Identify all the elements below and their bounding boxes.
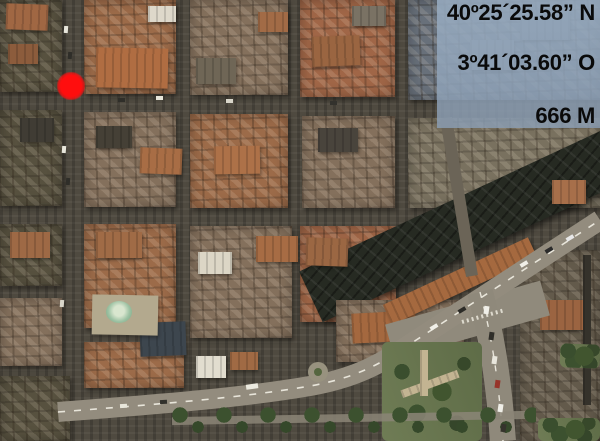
round-pool [106, 301, 132, 323]
vehicle [160, 400, 167, 404]
building-roof [256, 236, 298, 262]
vehicle [64, 26, 68, 33]
building-roof [148, 6, 176, 22]
building-roof [318, 128, 358, 152]
building-roof [198, 252, 232, 274]
traffic-island [308, 362, 328, 382]
building-roof [352, 6, 386, 26]
vehicle [488, 332, 494, 341]
crosswalk [462, 310, 505, 322]
building-roof [140, 147, 183, 174]
alley [583, 255, 591, 405]
building-roof [10, 232, 50, 258]
park [538, 418, 600, 441]
vehicle [226, 99, 233, 103]
latitude-label: 40º25´25.58” N [437, 0, 600, 26]
building-roof [96, 126, 132, 148]
vehicle [491, 356, 497, 365]
longitude-label: 3º41´03.60” O [437, 50, 600, 76]
building-roof [6, 3, 49, 30]
city-block [0, 298, 62, 366]
tree-row [168, 403, 536, 441]
park-path [420, 350, 428, 396]
vehicle [118, 98, 125, 102]
vehicle [330, 101, 337, 105]
building-roof [96, 47, 169, 88]
elevation-label: 666 M [437, 103, 600, 129]
building-roof [20, 118, 54, 142]
coordinates-overlay: 40º25´25.58” N 3º41´03.60” O 666 M [437, 0, 600, 128]
traffic-island-green [314, 368, 322, 376]
building-roof [306, 237, 349, 266]
vehicle [483, 306, 489, 315]
park [560, 343, 600, 368]
building-roof [552, 180, 586, 204]
building-roof [96, 232, 142, 258]
vehicle [66, 178, 70, 185]
building-roof [214, 146, 260, 175]
vehicle [494, 380, 500, 389]
building-roof [8, 44, 38, 64]
vehicle [566, 234, 575, 242]
building-roof [196, 58, 236, 84]
city-block [0, 376, 70, 441]
satellite-map-view[interactable]: 40º25´25.58” N 3º41´03.60” O 666 M [0, 0, 600, 441]
building-roof [230, 352, 258, 370]
vehicle [120, 404, 127, 408]
building-roof [311, 35, 360, 67]
building-roof [540, 300, 584, 330]
building-roof [196, 356, 226, 378]
vehicle [68, 52, 72, 59]
bus [246, 383, 259, 390]
building-roof [258, 12, 288, 32]
vehicle [62, 146, 66, 153]
vehicle [156, 96, 163, 100]
location-marker-icon[interactable] [57, 72, 85, 100]
